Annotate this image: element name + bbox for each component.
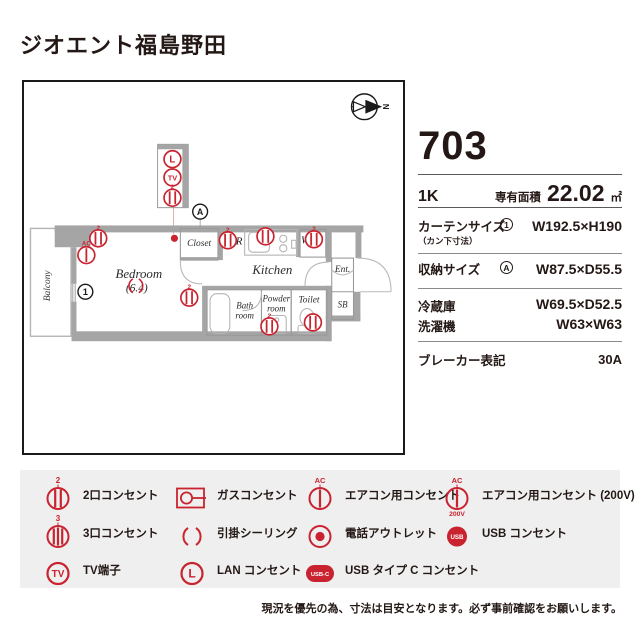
- curtain-sublabel: （カン下寸法）: [418, 235, 622, 247]
- svg-text:L: L: [188, 567, 195, 581]
- divider: [418, 174, 622, 175]
- svg-text:2: 2: [56, 476, 61, 485]
- balcony-label: Balcony: [43, 270, 53, 302]
- compass-icon: N: [352, 94, 391, 120]
- divider: [418, 288, 622, 289]
- phone-outlet-icon: [171, 235, 178, 242]
- floor-plan-sheet: ジオエント福島野田 N Balcony: [0, 0, 640, 640]
- svg-text:AC: AC: [452, 476, 463, 485]
- toilet-label: Toilet: [298, 296, 319, 306]
- curtain-value: W192.5×H190: [532, 218, 622, 234]
- outlet2-icon: [305, 314, 322, 331]
- legend-lan: L LAN コンセント: [172, 548, 301, 592]
- storage-ref-marker: A: [193, 204, 208, 228]
- divider: [418, 253, 622, 254]
- svg-text:1: 1: [83, 286, 88, 297]
- page-title: ジオエント福島野田: [20, 28, 227, 60]
- stove-burner: [280, 245, 287, 252]
- floor-plan: N Balcony: [24, 82, 403, 453]
- lan-outlet-icon: L: [164, 151, 181, 168]
- bathtub: [210, 294, 230, 334]
- closet-label: Closet: [187, 239, 211, 249]
- area-unit: ㎡: [611, 189, 623, 205]
- fridge-letter: R: [235, 235, 243, 247]
- kitchen-label: Kitchen: [251, 263, 292, 277]
- storage-value: W87.5×D55.5: [536, 261, 622, 277]
- svg-text:L: L: [169, 155, 175, 166]
- layout-type: 1K: [418, 188, 438, 206]
- washer-value: W63×W63: [556, 316, 622, 332]
- svg-text:USB-C: USB-C: [311, 572, 330, 578]
- legend-usb-c: USB-C USB タイプ C コンセント: [300, 548, 479, 592]
- shoebox-label: SB: [338, 300, 348, 310]
- spec-row-fridge: 冷蔵庫 W69.5×D52.5: [418, 296, 622, 315]
- bathroom-label-2: room: [235, 310, 254, 320]
- area-value: 22.02: [547, 180, 605, 207]
- divider: [418, 207, 622, 208]
- stove-burner: [280, 235, 287, 242]
- room-number: 703: [418, 124, 488, 169]
- outlet2-icon: [257, 228, 274, 245]
- svg-text:TV: TV: [168, 173, 178, 182]
- area-label: 専有面積: [495, 189, 541, 205]
- compass-n-label: N: [381, 104, 390, 110]
- legend-tv: TV TV端子: [38, 548, 121, 592]
- tv-terminal-icon: TV: [38, 548, 78, 592]
- disclaimer-text: 現況を優先の為、寸法は目安となります。必ず事前確認をお願いします。: [22, 600, 622, 616]
- spec-row-storage: 収納サイズ A W87.5×D55.5: [418, 259, 622, 278]
- svg-text:AC: AC: [315, 476, 326, 485]
- divider: [418, 341, 622, 342]
- spec-row-breaker: ブレーカー表記 30A: [418, 350, 622, 369]
- lan-outlet-icon: L: [172, 548, 212, 592]
- svg-text:A: A: [197, 207, 204, 217]
- spec-row-washer: 洗濯機 W63×W63: [418, 316, 622, 335]
- curtain-ref: 1: [500, 218, 513, 231]
- breaker-value: 30A: [598, 352, 622, 367]
- svg-text:USB: USB: [450, 534, 464, 541]
- usb-c-outlet-icon: USB-C: [300, 548, 340, 592]
- spec-row-curtain: カーテンサイズ （カン下寸法） 1 W192.5×H190: [418, 216, 622, 247]
- svg-text:3: 3: [56, 514, 61, 523]
- unit-info-panel: 703 1K 専有面積 22.02 ㎡ カーテンサイズ （カン下寸法） 1 W1…: [418, 130, 622, 380]
- outlet2-icon: 2: [181, 284, 198, 306]
- svg-text:TV: TV: [52, 569, 65, 580]
- bedroom-label: Bedroom: [115, 267, 162, 281]
- bathroom-label-1: Bath: [236, 301, 253, 311]
- entrance-label: Ent.: [334, 265, 350, 275]
- powder-label-1: Powder: [261, 294, 290, 304]
- breaker-label: ブレーカー表記: [418, 350, 622, 369]
- storage-ref: A: [500, 261, 513, 274]
- window: [73, 284, 75, 302]
- outlet2-icon: 2: [261, 313, 278, 335]
- floor-plan-frame: N Balcony: [22, 80, 405, 455]
- fridge-value: W69.5×D52.5: [536, 296, 622, 312]
- legend-panel: 2 2口コンセント ガスコンセント AC エアコン用コ: [20, 470, 620, 588]
- curtain-ref-marker: 1: [78, 284, 93, 299]
